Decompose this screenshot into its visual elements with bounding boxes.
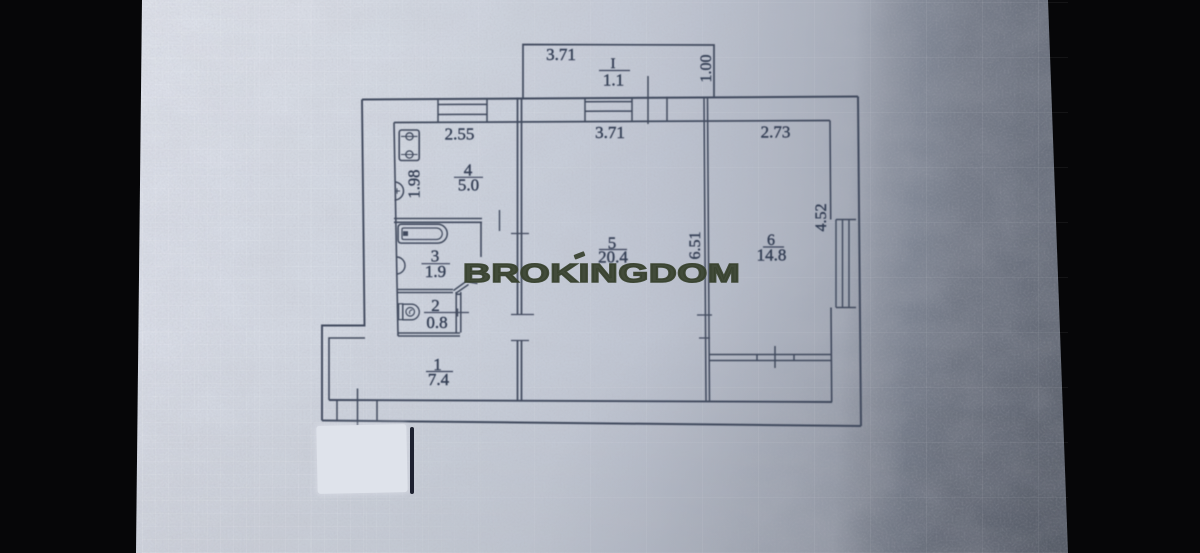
svg-text:2.73: 2.73 [761,123,791,142]
svg-text:2.55: 2.55 [445,125,475,144]
svg-text:5.0: 5.0 [458,176,479,195]
svg-text:4.52: 4.52 [813,204,830,232]
svg-text:0.8: 0.8 [426,313,447,332]
svg-text:6.51: 6.51 [687,232,704,260]
svg-text:1.00: 1.00 [698,55,715,83]
svg-text:3.71: 3.71 [595,123,625,142]
svg-text:1.1: 1.1 [603,71,624,90]
svg-text:3.71: 3.71 [546,45,576,64]
svg-text:1.9: 1.9 [425,262,446,281]
svg-text:1.98: 1.98 [405,170,424,199]
svg-text:7.4: 7.4 [428,370,450,389]
